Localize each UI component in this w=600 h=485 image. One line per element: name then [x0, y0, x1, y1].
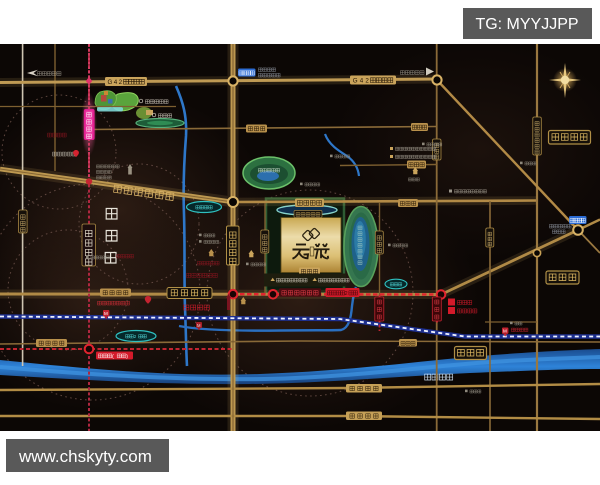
svg-text:2: 2 [345, 291, 348, 297]
svg-text:M: M [503, 329, 507, 334]
svg-text:www.chskyty.com: www.chskyty.com [18, 447, 152, 466]
svg-text:M: M [104, 311, 108, 316]
svg-text:TG: MYYJJPP: TG: MYYJJPP [475, 16, 578, 33]
svg-text:M: M [197, 323, 201, 328]
svg-text:G42: G42 [353, 78, 370, 85]
svg-text:G42: G42 [108, 79, 123, 86]
